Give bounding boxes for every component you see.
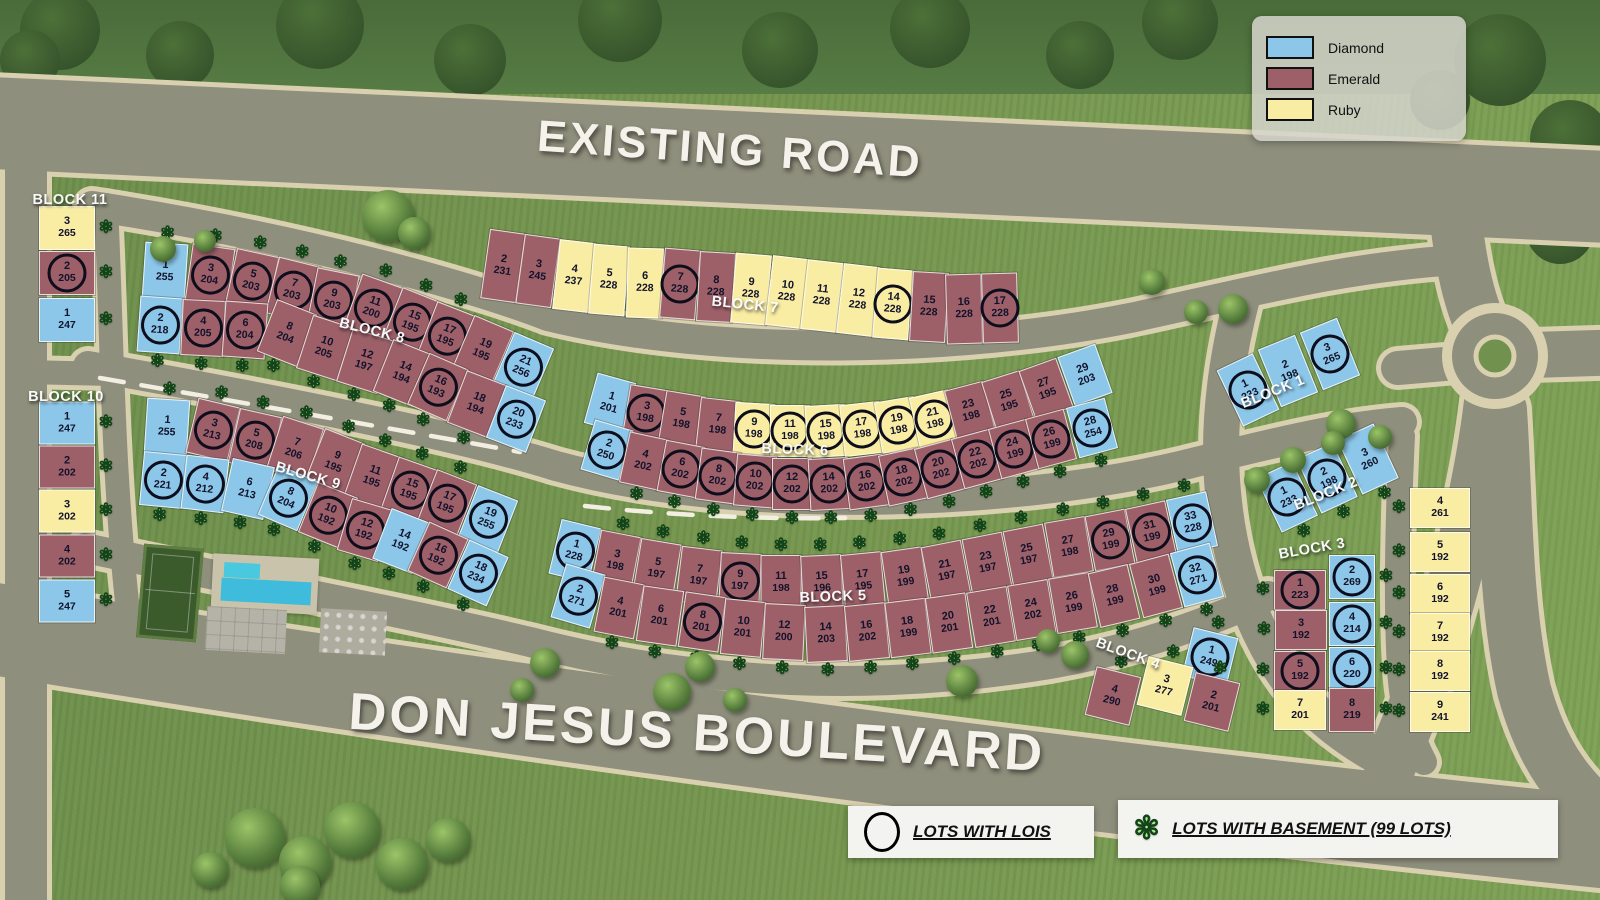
basement-icon: ✻ [824,511,837,527]
lot-area: 201 [1201,700,1221,715]
lot-area: 203 [817,634,835,646]
lot-area: 220 [1343,669,1361,681]
basement-icon: ✻ [616,517,629,533]
lot-b3b-4: 4214 [1329,602,1375,646]
lot-area: 202 [858,631,877,644]
lot-b9b-2: 2221 [139,451,187,509]
basement-legend-label: LOTS WITH BASEMENT (99 LOTS) [1172,819,1451,839]
lot-area: 228 [991,308,1009,320]
basement-legend-box: ✻ LOTS WITH BASEMENT (99 LOTS) [1118,800,1558,858]
basement-icon: ✻ [233,516,246,532]
block-label-b5: BLOCK 5 [799,588,867,606]
lot-b10-2: 2202 [39,446,95,489]
basement-icon: ✻ [1379,569,1392,585]
lot-area: 197 [978,561,997,576]
lot-area: 192 [1431,633,1449,645]
lot-area: 205 [313,345,333,361]
basement-icon: ✻ [776,661,789,677]
lot-area: 254 [1084,426,1104,442]
block-label-b11: BLOCK 11 [33,192,108,208]
basement-icon: ✻ [308,540,321,556]
lot-b10-4: 4202 [39,535,95,578]
lot-b7-7: 7228 [659,248,701,321]
lot-area: 199 [1105,594,1125,609]
lot-area: 192 [353,528,373,544]
basement-icon: ✻ [1256,582,1269,598]
lot-area: 195 [1000,398,1020,414]
lot-area: 195 [1038,386,1058,403]
tree [426,818,470,862]
basement-icon: ✻ [1016,475,1029,491]
basement-icon: ✻ [151,354,164,370]
basement-icon: ✻ [774,538,787,554]
basement-icon: ✻ [416,447,429,463]
lot-area: 202 [58,511,76,523]
basement-icon: ✻ [1257,622,1270,638]
basement-icon: ✻ [348,557,361,573]
basement-icon: ✻ [973,519,986,535]
lot-area: 228 [636,283,654,295]
basement-icon: ✻ [379,434,392,450]
basement-icon: ✻ [153,508,166,524]
basement-icon: ✻ [417,580,430,596]
lot-area: 199 [899,627,918,641]
lot-area: 205 [194,328,212,340]
lot-area: 201 [940,622,959,636]
basement-icon: ✻ [605,636,618,652]
basement-icon: ✻ [256,396,269,412]
lot-area: 201 [692,621,711,635]
lot-area: 204 [275,330,296,347]
basement-icon: ✻ [1056,503,1069,519]
lot-area: 218 [150,324,168,337]
lot-area: 197 [937,569,956,584]
lot-area: 247 [58,601,76,613]
lot-area: 198 [962,409,982,425]
lot-b7-5: 5228 [588,244,630,317]
lot-area: 199 [896,576,915,590]
basement-icon: ✻ [195,357,208,373]
basement-icon: ✻ [347,388,360,404]
lot-area: 198 [605,559,624,574]
lot-area: 271 [1189,573,1209,589]
lot-area: 202 [969,457,989,473]
lot-b5b-6: 6201 [636,585,685,646]
tree [398,217,430,249]
tree [1218,294,1248,324]
basement-icon: ✻ [1379,616,1392,632]
tree [280,866,320,900]
lot-area: 202 [894,475,914,490]
basement-icon: ✻ [253,236,266,252]
lot-b10-3: 3202 [39,490,95,533]
lot-area: 197 [353,358,373,374]
lot-area: 206 [283,446,303,462]
lot-area: 198 [745,429,763,442]
lot-area: 192 [1431,671,1449,683]
basement-icon: ✻ [99,220,112,236]
basement-icon: ✻ [1014,511,1027,527]
lot-area: 265 [58,228,76,240]
lot-area: 213 [237,487,257,502]
basement-icon: ✻ [1167,645,1180,661]
lot-area: 213 [202,428,222,443]
lot-b3a-3: 3192 [1275,610,1327,650]
basement-icon: ✻ [267,359,280,375]
lot-area: 231 [493,265,512,279]
basement-icon: ✻ [904,503,917,519]
basement-icon: ✻ [1116,624,1129,640]
lot-area: 202 [708,475,727,489]
basement-icon: ✻ [668,495,681,511]
basement-icon: ✻ [383,399,396,415]
lot-area: 255 [155,271,173,284]
lot-area: 197 [731,581,749,593]
lot-area: 197 [689,575,708,589]
basement-icon: ✻ [979,485,992,501]
lois-legend-box: LOTS WITH LOIS [848,806,1094,858]
lot-b10-1: 1247 [39,402,95,445]
lot-b3a-1: 1223 [1274,570,1326,610]
legend-label: Diamond [1328,40,1384,56]
basement-icon: ✻ [99,548,112,564]
lot-area: 199 [1101,538,1120,553]
lot-number: 4 [64,544,70,556]
basement-icon: ✻ [813,538,826,554]
basement-icon: ✻ [1337,505,1350,521]
tree [1244,467,1270,493]
lot-b5b-8: 8201 [678,591,727,652]
basement-icon: ✻ [296,245,309,261]
legend-item-diamond: Diamond [1266,36,1452,59]
basement-icon: ✻ [1256,663,1269,679]
legend-swatch-diamond [1266,36,1314,59]
lot-area: 199 [1064,602,1083,616]
lot-area: 255 [158,426,176,439]
lot-area: 204 [200,274,219,288]
lot-area: 219 [1343,710,1361,722]
lot-b11-1: 1247 [39,298,95,342]
lot-b9a-1: 1255 [144,398,191,457]
lot-area: 192 [1431,594,1449,606]
basement-icon: ✻ [1096,496,1109,512]
basement-icon: ✻ [821,663,834,679]
lot-area: 198 [772,583,790,595]
basement-icon: ✻ [864,661,877,677]
lot-area: 203 [322,298,341,313]
lot-b7-17: 17228 [981,273,1019,344]
lot-area: 228 [564,549,584,564]
tree [376,838,428,890]
lot-area: 202 [633,459,653,474]
lot-area: 198 [1060,546,1079,560]
basement-icon: ✻ [853,536,866,552]
basement-icon: ✻ [1136,488,1149,504]
lot-number: 2 [64,455,70,467]
lot-b10-5: 5247 [39,580,95,623]
lot-area: 201 [598,401,618,417]
tree [1321,431,1345,455]
lot-area: 202 [1023,609,1042,623]
lot-b7-16: 16228 [945,274,983,345]
basement-icon: ✻ [457,598,470,614]
lot-b3a-7: 7201 [1274,690,1326,730]
lot-b3c-9: 9241 [1410,692,1470,732]
lot-area: 245 [528,270,547,284]
lot-area: 228 [599,279,617,292]
lot-area: 202 [58,467,76,479]
lot-area: 202 [820,484,838,496]
basement-icon: ✻ [1212,616,1225,632]
basement-icon: ✻ [1256,702,1269,718]
lot-area: 228 [777,291,796,304]
tree [150,236,176,262]
basement-icon: ✻ [99,593,112,609]
basement-icon: ✻ [215,386,228,402]
lois-legend-label: LOTS WITH LOIS [913,822,1051,842]
lot-area: 198 [708,424,727,437]
lot-b4-4: 4290 [1085,666,1142,726]
lot-area: 290 [1102,694,1122,709]
lot-area: 198 [889,424,908,438]
basement-icon: ✻ [342,420,355,436]
basement-icon: ✻ [942,495,955,511]
lot-area: 199 [1043,437,1063,453]
lot-area: 199 [1142,530,1162,545]
basement-icon: ✻ [417,413,430,429]
lot-b3c-8: 8192 [1410,651,1470,691]
lot-area: 250 [595,448,615,464]
basement-icon: ✻ [864,509,877,525]
basement-icon: ✻ [785,511,798,527]
lot-area: 201 [733,627,752,640]
lot-area: 228 [1183,521,1203,536]
lot-area: 198 [925,417,945,432]
lot-area: 198 [635,412,654,426]
lot-b6b-12: 12202 [772,458,812,510]
lot-b6b-10: 10202 [733,453,777,508]
basement-icon: ✻ [1392,704,1405,720]
tree [1061,641,1089,669]
basement-icon: ✻ [735,536,748,552]
lot-b7-6: 6228 [626,248,664,319]
lot-area: 199 [1148,584,1168,600]
basement-icon: ✻ [1379,661,1392,677]
lot-area: 201 [1291,710,1309,722]
basement-icon: ✻ [379,264,392,280]
tree [1139,269,1165,295]
tree [1036,629,1060,653]
basement-icon: ✻ [99,459,112,475]
lot-area: 199 [1006,447,1026,463]
lot-area: 261 [1431,508,1449,520]
tree [225,808,285,868]
lot-area: 228 [955,309,973,321]
tree [1184,300,1208,324]
basement-icon: ✻ [1053,465,1066,481]
basement-icon: ✻ [1392,586,1405,602]
legend-swatch-ruby [1266,98,1314,121]
lot-number: 3 [64,499,70,511]
lot-area: 228 [883,303,901,316]
lot-b5b-20: 20201 [925,592,974,653]
basement-icon: ✻ [267,523,280,539]
lot-area: 201 [608,606,627,621]
basement-icon: ✻ [893,532,906,548]
lot-area: 202 [745,480,763,493]
lot-area: 192 [1292,630,1310,642]
lot-area: 197 [646,568,665,582]
basement-icon: ✻ [932,527,945,543]
basement-icon: ✻ [1392,500,1405,516]
lot-b3b-2: 2269 [1329,555,1375,599]
basement-icon: ✻ [697,531,710,547]
tree [946,665,978,697]
basement-icon: ✻ [307,375,320,391]
basement-icon: ✻ [1214,661,1227,677]
basement-icon: ✻ [1177,479,1190,495]
lot-area: 228 [848,299,867,312]
tree [530,648,560,678]
lot-area: 212 [195,483,214,496]
lot-b5b-18: 18199 [884,598,931,659]
tree [194,230,216,252]
lot-area: 214 [1343,624,1361,636]
lot-area: 202 [857,481,876,495]
lot-area: 197 [1019,553,1038,568]
basement-icon: ✻ [1392,625,1405,641]
lot-area: 198 [817,431,835,444]
lot-area: 200 [775,632,793,644]
basement-icon: ✻ [1392,544,1405,560]
lot-b8b-2: 2218 [137,296,184,355]
lot-area: 223 [1291,590,1309,602]
block-label-b10: BLOCK 10 [28,389,104,405]
lot-area: 265 [1322,351,1343,368]
tree [1280,447,1306,473]
lot-area: 277 [1154,684,1174,699]
lot-area: 247 [58,320,76,332]
lot-area: 237 [564,275,583,288]
basement-icon: ✻ [1379,702,1392,718]
basement-icon: ✻ [419,279,432,295]
basement-icon: ✻ [733,657,746,673]
lot-b3c-4: 4261 [1410,488,1470,528]
tree [685,652,715,682]
lot-area: 228 [812,295,831,308]
lot-area: 203 [241,279,261,294]
lot-area: 202 [58,556,76,568]
lot-area: 269 [1343,577,1361,589]
tree [324,802,380,858]
basement-icon: ✻ [300,406,313,422]
lot-area: 198 [671,418,690,432]
basement-icon: ✻ [194,512,207,528]
basement-icon: ✻ [745,508,758,524]
lot-b5b-12: 12200 [762,603,806,661]
lot-area: 271 [566,594,586,610]
lot-area: 203 [1077,372,1097,389]
lot-b3c-7: 7192 [1410,613,1470,653]
basement-icon: ✻ [1378,486,1391,502]
lot-area: 221 [153,479,172,492]
lot-b8b-4: 4205 [180,299,226,357]
lot-area: 201 [982,616,1001,630]
lot-area: 202 [932,467,952,483]
basement-icon: ✻ [454,293,467,309]
lot-area: 247 [58,423,76,435]
lot-b3b-8: 8219 [1329,688,1375,732]
lot-b3c-6: 6192 [1410,574,1470,614]
loi-circle-icon [864,812,900,852]
lot-area: 205 [58,273,76,285]
lot-area: 228 [670,283,688,296]
site-map: 3265✻2205✻1247✻1247✻2202✻3202✻4202✻5247✻… [0,0,1600,900]
lot-area: 202 [670,467,689,482]
lot-number: 1 [64,411,70,423]
lot-b7-14: 14228 [872,268,914,341]
basement-icon: ✻ [648,645,661,661]
basement-icon: ✻ [334,255,347,271]
lot-b5b-16: 16202 [844,602,890,662]
basement-icon: ✻ [99,415,112,431]
lot-b5b-14: 14203 [804,605,848,663]
lot-b11-2: 2205 [39,251,95,295]
basement-icon: ✻ [99,265,112,281]
lot-b11-3: 3265 [39,206,95,250]
legend-label: Emerald [1328,71,1380,87]
lot-area: 192 [1431,552,1449,564]
lot-b3c-5: 5192 [1410,532,1470,572]
basement-icon: ✻ [382,567,395,583]
lot-number: 5 [64,589,70,601]
block-label-b6: BLOCK 6 [761,441,829,459]
legend-box: DiamondEmeraldRuby [1252,16,1466,141]
tree [192,852,228,888]
lot-b3b-6: 6220 [1329,647,1375,691]
basement-icon: ✻ [707,503,720,519]
tree [1368,425,1392,449]
basement-icon: ✻ [991,645,1004,661]
basement-icon: ✻ [236,359,249,375]
legend-item-emerald: Emerald [1266,67,1452,90]
basement-icon: ✻ [906,657,919,673]
legend-item-ruby: Ruby [1266,98,1452,121]
lot-area: 192 [1291,671,1309,683]
basement-icon: ✻ [163,382,176,398]
basement-icon: ✻ [99,312,112,328]
basement-icon: ✻ [454,461,467,477]
basement-icon: ✻ [1134,814,1159,844]
lot-area: 201 [650,615,669,629]
lot-area: 208 [244,438,264,453]
basement-icon: ✻ [1392,663,1405,679]
lot-area: 202 [783,484,801,496]
basement-icon: ✻ [1094,454,1107,470]
lot-area: 228 [920,306,938,319]
basement-icon: ✻ [656,525,669,541]
lot-area: 204 [235,329,253,342]
lot-b5b-10: 10201 [720,598,766,658]
lot-area: 241 [1431,712,1449,724]
lot-b3a-5: 5192 [1274,651,1326,691]
lot-area: 198 [853,428,872,441]
basement-icon: ✻ [1159,614,1172,630]
basement-icon: ✻ [1297,524,1310,540]
lot-b4-2: 2201 [1184,672,1241,732]
basement-icon: ✻ [457,431,470,447]
basement-icon: ✻ [99,503,112,519]
